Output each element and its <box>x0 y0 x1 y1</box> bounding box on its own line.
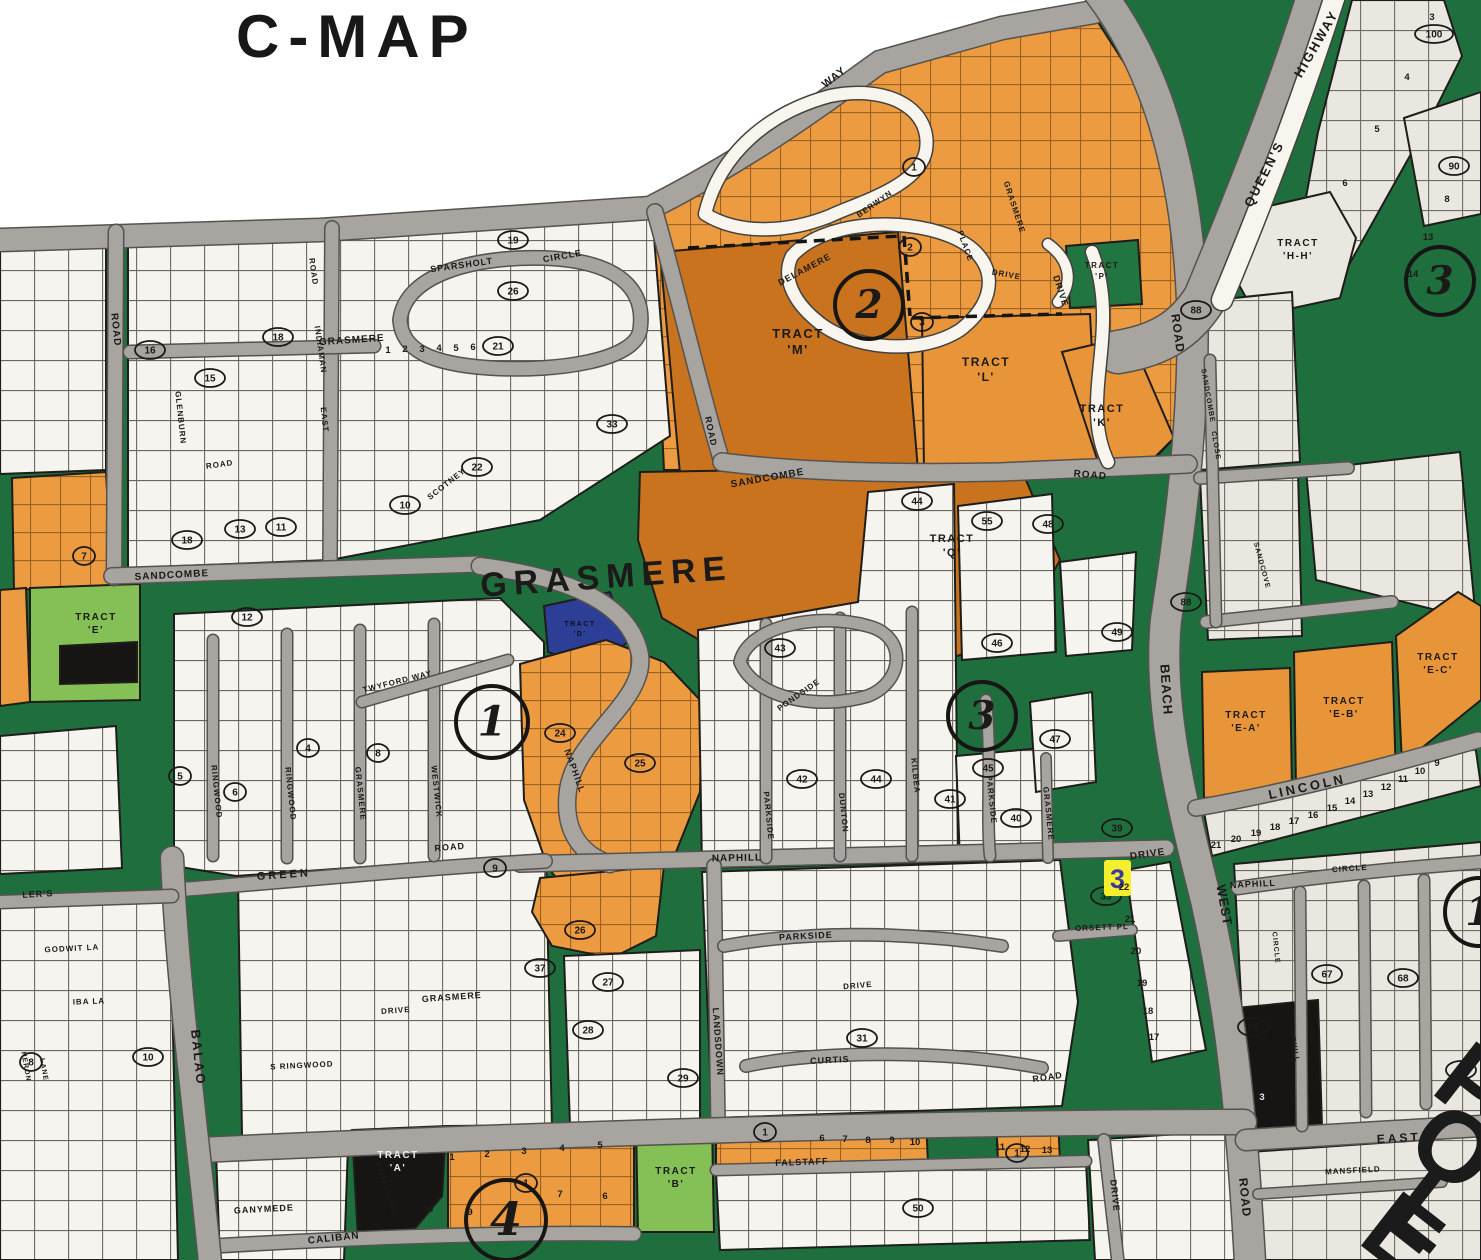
road-label-curtis: CURTIS <box>810 1054 850 1066</box>
lot-number: 20 <box>1231 834 1242 845</box>
lot-number: 6 <box>602 1191 607 1202</box>
lot-number: 10 <box>423 1204 434 1215</box>
oval-marker-number: 42 <box>796 775 808 786</box>
map-svg: WAYDELAMEREBERWYNGRASMEREPLACEDRIVEDRIVE… <box>0 0 1481 1260</box>
block-ringwood-south <box>238 858 552 1136</box>
oval-marker-number: 7 <box>81 552 87 563</box>
tract-label: 'A' <box>390 1163 406 1174</box>
oval-marker-number: 40 <box>1010 814 1022 825</box>
lot-number: 13 <box>1042 1145 1053 1156</box>
oval-marker-number: 31 <box>856 1034 868 1045</box>
oval-marker-number: 16 <box>144 346 156 357</box>
lot-number: 9 <box>1434 758 1439 769</box>
lot-number: 21 <box>1211 840 1222 851</box>
lot-number: 1 <box>449 1152 455 1163</box>
section-number-3: 3 <box>968 693 995 739</box>
lot-number: 6 <box>819 1133 824 1144</box>
road-label-naphill: NAPHILL <box>712 853 763 865</box>
oval-marker-number: 48 <box>1042 520 1054 531</box>
lot-number: 15 <box>1327 803 1338 814</box>
oval-marker-number: 9 <box>492 864 498 875</box>
tract-label: 'E' <box>88 625 104 636</box>
oval-marker-number: 15 <box>204 374 216 385</box>
lot-number: 13 <box>1423 232 1434 243</box>
oval-marker-number: 10 <box>142 1053 154 1064</box>
oval-marker-number: 26 <box>574 926 586 937</box>
section-number-4: 4 <box>490 1192 522 1246</box>
tract-label: TRACT <box>1085 261 1120 270</box>
section-number-3: 3 <box>1426 258 1453 304</box>
c-map-scan: WAYDELAMEREBERWYNGRASMEREPLACEDRIVEDRIVE… <box>0 0 1481 1260</box>
lot-number: 1 <box>385 345 391 356</box>
tract-e-black-parcel <box>60 642 137 684</box>
left-road <box>114 232 116 578</box>
oval-marker-number: 22 <box>471 463 483 474</box>
oval-marker-number: 2 <box>907 243 913 254</box>
section-number-1: 1 <box>1465 889 1481 935</box>
tract-label: TRACT <box>1323 696 1364 707</box>
oval-marker-number: 18 <box>272 333 284 344</box>
oval-marker-number: 27 <box>602 978 614 989</box>
indiaman-road <box>330 228 332 560</box>
section-number-2: 2 <box>854 282 882 328</box>
lot-number: 3 <box>521 1146 526 1157</box>
road-label-iba-la: IBA LA <box>73 996 106 1006</box>
tract-label: 'B' <box>668 1179 684 1190</box>
lot-number: 16 <box>1308 810 1319 821</box>
lot-number: 12 <box>1020 1144 1031 1155</box>
oval-marker-number: 46 <box>991 639 1003 650</box>
oval-marker-number: 4 <box>305 744 311 755</box>
lot-number: 8 <box>865 1135 870 1146</box>
oval-marker-number: 88 <box>1190 306 1202 317</box>
lot-number: 17 <box>1289 816 1300 827</box>
oval-marker-number: 21 <box>492 342 504 353</box>
tract-label: TRACT <box>930 533 975 545</box>
lot-number: 9 <box>467 1207 472 1218</box>
tract-label: TRACT <box>1080 403 1125 415</box>
lot-number: 14 <box>1408 269 1419 280</box>
lot-number: 13 <box>1363 789 1374 800</box>
lot-number: 5 <box>597 1140 603 1151</box>
tract-label: TRACT <box>1277 238 1318 249</box>
tract-label: TRACT <box>772 326 824 341</box>
lot-number: 11 <box>995 1142 1006 1153</box>
oval-marker-number: 33 <box>606 420 618 431</box>
lot-number: 7 <box>557 1189 562 1200</box>
oval-marker-number: 5 <box>177 772 183 783</box>
circle-vert-3 <box>1424 880 1426 1104</box>
lot-number: 3 <box>1429 12 1434 23</box>
oval-marker-number: 13 <box>234 525 246 536</box>
lot-number: 21 <box>1125 914 1136 925</box>
block-left-strip <box>0 246 106 474</box>
lot-number: 9 <box>889 1135 894 1146</box>
tract-label: TRACT <box>962 355 1010 369</box>
tract-e-orange-sliver <box>0 588 30 706</box>
oval-marker-number: 90 <box>1448 162 1460 173</box>
oval-marker-number: 28 <box>582 1026 594 1037</box>
oval-marker-number: 8 <box>375 749 381 760</box>
oval-marker-number: 49 <box>1111 628 1123 639</box>
lot-number: 7 <box>842 1134 847 1145</box>
block-left-mid <box>0 726 122 874</box>
lot-number: 8 <box>1444 194 1449 205</box>
oval-marker-number: 68 <box>1397 974 1409 985</box>
oval-marker-number: 50 <box>912 1204 924 1215</box>
oval-marker-number: 18 <box>181 536 193 547</box>
lot-number: 5 <box>453 343 459 354</box>
oval-marker-number: 44 <box>870 775 882 786</box>
lot-number: 18 <box>1270 822 1281 833</box>
lot-number: 2 <box>402 344 407 355</box>
map-root: WAYDELAMEREBERWYNGRASMEREPLACEDRIVEDRIVE… <box>0 0 1481 1260</box>
lot-number: 12 <box>1381 782 1392 793</box>
lot-number: 6 <box>470 342 475 353</box>
lot-number: 6 <box>1342 178 1347 189</box>
oval-marker-number: 66 <box>1247 1023 1259 1034</box>
tract-label: 'K' <box>1093 417 1111 429</box>
tract-label: TRACT <box>655 1166 696 1177</box>
tract-label: 'P' <box>1095 272 1109 281</box>
oval-marker-number: 1 <box>911 163 917 174</box>
tract-label: TRACT <box>377 1150 418 1161</box>
lot-number: 11 <box>1398 774 1409 785</box>
oval-marker-number: 37 <box>534 964 546 975</box>
tract-label: 'E-A' <box>1231 723 1260 734</box>
tract-label: 'Q' <box>943 547 961 559</box>
lot-number: 19 <box>1137 978 1148 989</box>
tract-label: 'E-B' <box>1329 709 1358 720</box>
road-label-falstaff: FALSTAFF <box>775 1156 829 1168</box>
lot-number: 3 <box>419 344 424 355</box>
tract-label: TRACT <box>1225 710 1266 721</box>
oval-marker-number: 11 <box>276 523 287 534</box>
section-number-1: 1 <box>478 697 507 746</box>
oval-marker-number: 47 <box>1049 735 1061 746</box>
lot-number: 5 <box>1374 124 1380 135</box>
oval-marker-number: 44 <box>911 497 923 508</box>
oval-marker-number: 29 <box>677 1074 689 1085</box>
lot-number: 10 <box>1415 766 1426 777</box>
oval-marker-number: 10 <box>399 501 411 512</box>
block-left-orange <box>12 472 112 590</box>
oval-marker-number: 55 <box>981 517 993 528</box>
landsdown-road <box>714 866 718 1124</box>
tract-label: 'L' <box>977 370 995 384</box>
oval-marker-number: 41 <box>944 795 956 806</box>
road-label-ler-s: LER'S <box>22 888 54 900</box>
oval-marker-number: 19 <box>507 236 519 247</box>
oval-marker-number: 43 <box>774 644 786 655</box>
lot-number: 18 <box>1143 1006 1154 1017</box>
oval-marker-number: 1 <box>762 1128 768 1139</box>
lot-number: 4 <box>436 343 442 354</box>
oval-marker-number: 88 <box>1180 598 1192 609</box>
oval-marker-number: 24 <box>554 729 566 740</box>
lot-number: 3 <box>1259 1092 1264 1103</box>
tract-label: 'D' <box>574 631 587 638</box>
oval-marker-number: 8 <box>28 1058 34 1069</box>
oval-marker-number: 25 <box>634 759 646 770</box>
road-label-orsett-pl: ORSETT PL <box>1075 922 1129 933</box>
lot-number: 19 <box>1251 828 1262 839</box>
oval-marker-number: 6 <box>232 788 238 799</box>
tract-label: 'H-H' <box>1283 251 1313 262</box>
tract-label: 'E-C' <box>1423 665 1452 676</box>
oval-marker-number: 26 <box>507 287 519 298</box>
oval-marker-number: 67 <box>1321 970 1333 981</box>
lot-number: 4 <box>1404 72 1410 83</box>
oval-marker-number: 39 <box>1111 824 1123 835</box>
block-center-bottom <box>702 860 1078 1118</box>
lot-number: 14 <box>1345 796 1356 807</box>
lot-number: 22 <box>1119 882 1130 893</box>
lot-number: 17 <box>1149 1032 1160 1043</box>
lot-number: 20 <box>1131 946 1142 957</box>
oval-marker-number: 100 <box>1426 30 1443 41</box>
tract-label: TRACT <box>75 612 116 623</box>
circle-vert-1 <box>1300 892 1302 1126</box>
oval-marker-number: 3 <box>919 318 925 329</box>
map-title: C-MAP <box>236 2 478 71</box>
tract-label: TRACT <box>1417 652 1458 663</box>
tract-label: 'M' <box>787 342 809 357</box>
lot-number: 4 <box>559 1143 565 1154</box>
tract-label: TRACT <box>564 621 595 628</box>
lot-number: 2 <box>484 1149 489 1160</box>
oval-marker-number: 12 <box>241 613 253 624</box>
circle-vert-2 <box>1364 886 1366 1112</box>
oval-marker-number: 45 <box>982 764 994 775</box>
lot-number: 10 <box>910 1137 921 1148</box>
